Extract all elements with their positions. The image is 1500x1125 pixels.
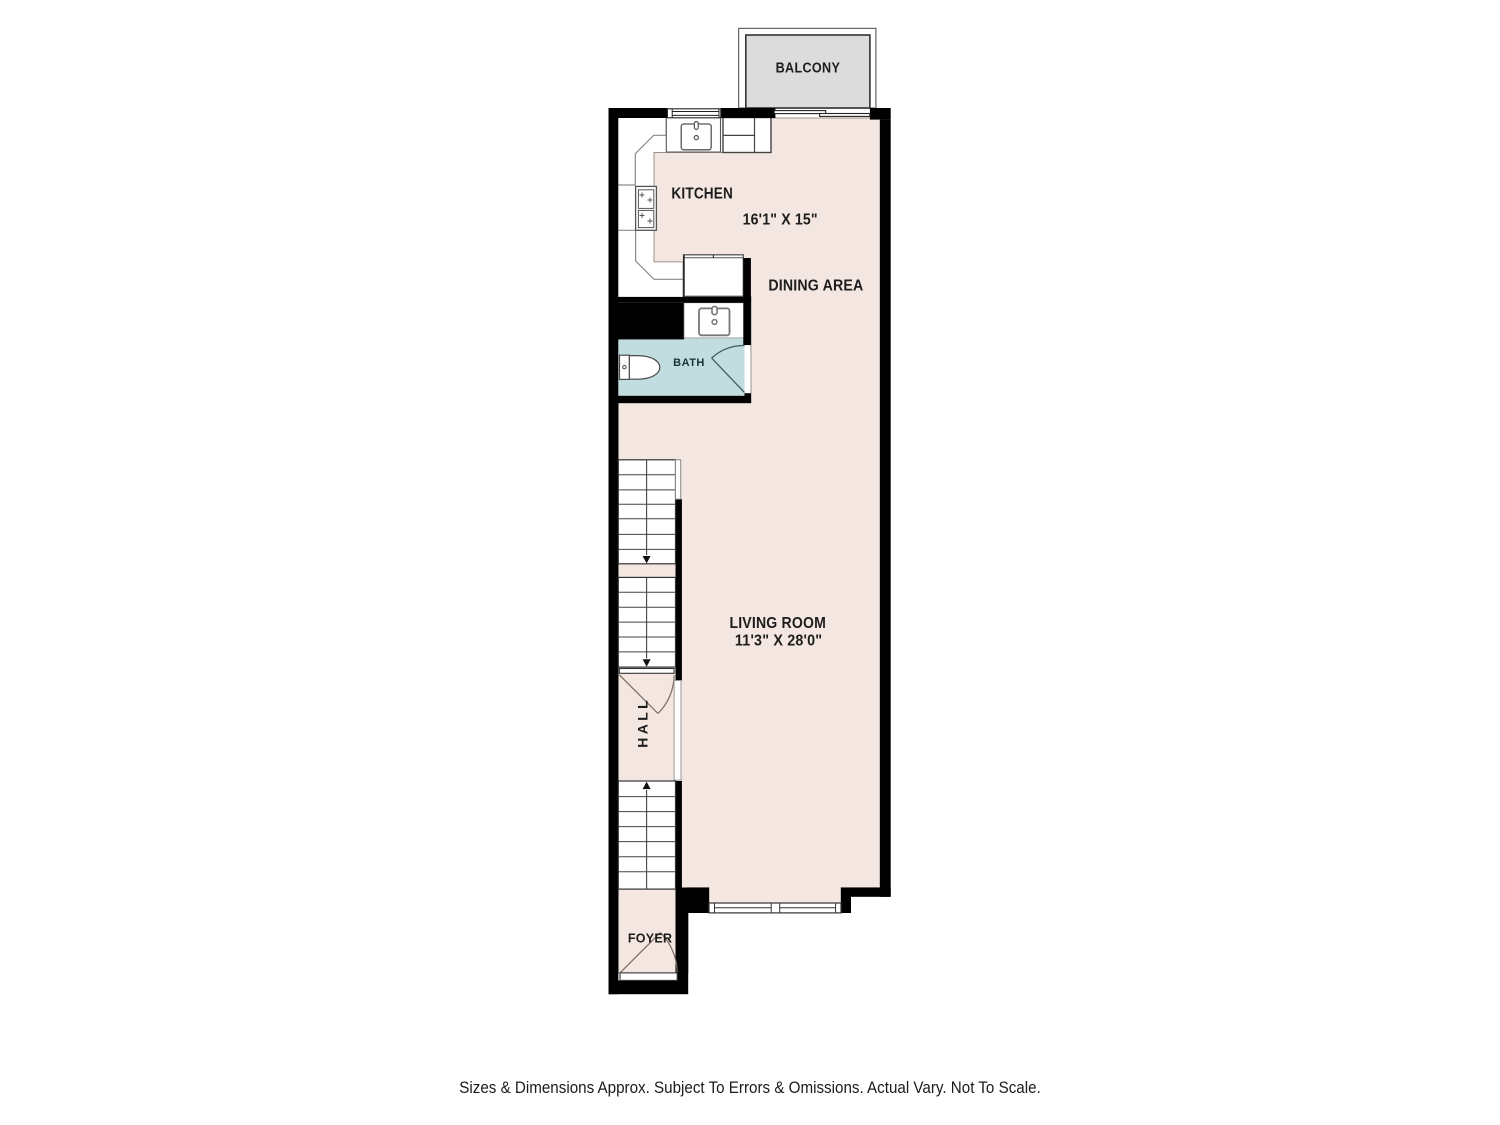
svg-text:LIVING ROOM: LIVING ROOM [729, 614, 826, 632]
svg-text:BALCONY: BALCONY [776, 58, 841, 75]
svg-text:Sizes & Dimensions Approx. Sub: Sizes & Dimensions Approx. Subject To Er… [459, 1079, 1040, 1097]
svg-text:11'3" X 28'0": 11'3" X 28'0" [735, 632, 822, 650]
svg-text:FOYER: FOYER [628, 932, 673, 946]
svg-text:KITCHEN: KITCHEN [671, 185, 733, 202]
svg-text:16'1" X 15": 16'1" X 15" [743, 211, 818, 229]
svg-text:BATH: BATH [673, 357, 705, 369]
svg-text:HALL: HALL [635, 697, 651, 748]
svg-text:DINING AREA: DINING AREA [768, 277, 863, 295]
